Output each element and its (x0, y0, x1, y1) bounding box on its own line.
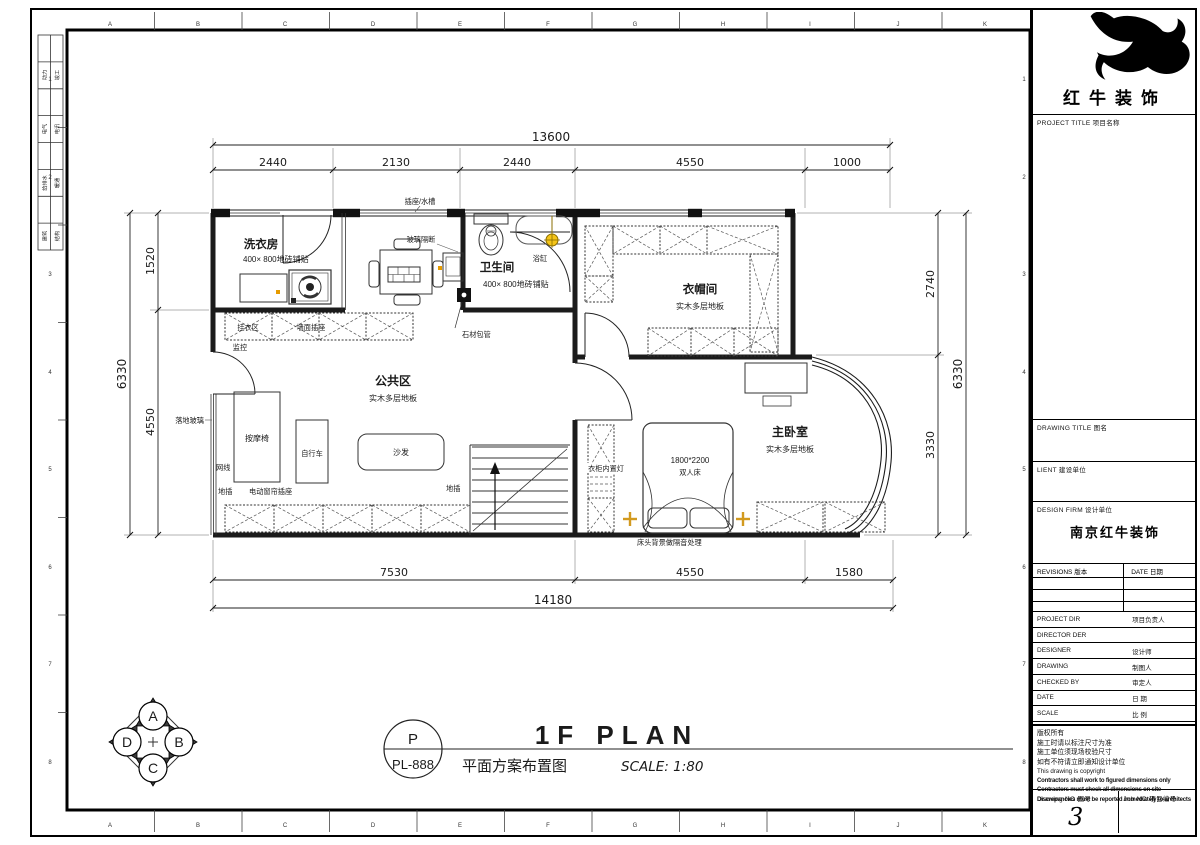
ruler-letter: E (458, 823, 462, 829)
label-bedroom-floor: 实木多层地板 (766, 444, 814, 454)
dim-bottom-seg: 4550 (676, 566, 704, 579)
ruler-letter: F (546, 823, 550, 829)
revisions-divider (1123, 564, 1124, 611)
label-floor-socket-left: 地插 (218, 487, 232, 496)
dim-top-seg: 2130 (382, 156, 410, 169)
label-bed-type: 双人床 (679, 468, 701, 477)
plan-title-scale: SCALE: 1:80 (621, 759, 703, 775)
bedside-lamp-icon (623, 512, 637, 526)
discipline-label: 动力 (41, 70, 49, 80)
sink-counter (388, 267, 420, 282)
drawing-no-value: 3 (1033, 803, 1118, 831)
row-label-en: DESIGNER (1033, 647, 1132, 654)
plan-code-top: P (408, 731, 418, 748)
ruler-letter: B (196, 823, 200, 829)
closet-door (585, 313, 629, 357)
ruler-letter: C (283, 22, 288, 28)
client-section: LIENT 建设单位 (1033, 462, 1197, 502)
plan-code-bottom: PL-888 (392, 757, 434, 772)
company-name: 红牛装饰 (1033, 84, 1197, 109)
row-label-en: SCALE (1033, 710, 1132, 717)
note-line: 版权所有 (1037, 729, 1197, 739)
label-glass-partition: 玻璃隔断 (407, 235, 436, 244)
dim-left-seg: 1520 (144, 247, 157, 275)
bedroom-door (575, 363, 632, 420)
row-label-cn: 制图人 (1132, 662, 1152, 672)
plan-title-main: 1F PLAN (535, 720, 699, 750)
revision-empty-row (1033, 578, 1197, 590)
ruler-letter: H (721, 823, 725, 829)
ruler-letter: F (546, 22, 550, 28)
vanity (443, 253, 463, 281)
drawing-title-section: DRAWING TITLE 图名 (1033, 420, 1197, 462)
dim-top-seg: 2440 (503, 156, 531, 169)
job-no-label: Job NO 项目编号 (1119, 791, 1197, 803)
bed (643, 423, 733, 533)
discipline-label: 电气 (41, 124, 49, 134)
label-floor-glass: 落地玻璃 (175, 416, 204, 425)
ruler-letters-top: A B C D E F G H I J K (108, 22, 987, 28)
number-row: Drawing NO 图号 3 Job NO 项目编号 (1033, 791, 1197, 833)
row-director: DIRECTOR DER (1033, 628, 1197, 644)
job-no-cell: Job NO 项目编号 (1119, 791, 1197, 833)
label-bathroom: 卫生间 (480, 260, 515, 274)
dim-right-seg: 3330 (924, 431, 937, 459)
ruler-number: 2 (1022, 175, 1026, 181)
drawing-no-label: Drawing NO 图号 (1033, 791, 1118, 803)
ruler-letter: I (809, 823, 811, 829)
ruler-letter: B (196, 22, 200, 28)
ruler-number: 3 (1022, 272, 1026, 278)
row-designer: DESIGNER设计师 (1033, 643, 1197, 659)
design-firm-label: DESIGN FIRM 设计单位 (1033, 502, 1197, 514)
compass-letter-b: B (174, 734, 183, 750)
project-title-section: PROJECT TITLE 项目名称 (1033, 115, 1197, 420)
top-wall (211, 209, 795, 217)
compass: A B C D (109, 698, 197, 786)
ruler-number: 4 (1022, 370, 1026, 376)
label-hanging-area: 挂衣区 (237, 323, 259, 332)
dim-left-total: 6330 (115, 359, 129, 390)
label-bedroom: 主卧室 (772, 424, 808, 439)
dim-top-seg: 1000 (833, 156, 861, 169)
client-label: LIENT 建设单位 (1033, 462, 1197, 474)
terrace-door (213, 352, 255, 394)
ruler-letter: D (371, 823, 376, 829)
row-checked-by: CHECKED BY审定人 (1033, 675, 1197, 691)
label-sofa: 沙发 (393, 447, 409, 457)
revisions-label: REVISIONS 版本 (1033, 566, 1127, 576)
ruler-letters-bottom: A B C D E F G H I J K (108, 823, 987, 829)
plan-title-cn: 平面方案布置图 (462, 757, 567, 775)
compass-letter-d: D (122, 734, 132, 750)
dimension-ticks (127, 142, 969, 611)
compass-letter-c: C (148, 760, 158, 776)
stairs (470, 445, 570, 535)
discipline-label: 建筑 (41, 230, 49, 241)
signature-table (38, 35, 63, 250)
discipline-label: 电讯 (53, 123, 61, 134)
ruler-letter: K (983, 22, 987, 28)
toilet (474, 214, 508, 255)
label-network: 网线 (216, 463, 230, 472)
row-label-en: PROJECT DIR (1033, 616, 1132, 623)
bay-window (812, 357, 891, 537)
discipline-label: 结构 (53, 231, 61, 241)
ruler-number: 5 (1022, 467, 1026, 473)
logo-hook (1096, 54, 1108, 79)
ruler-number: 4 (48, 370, 52, 376)
dim-bottom-seg: 1580 (835, 566, 863, 579)
label-massage-chair: 按摩椅 (245, 433, 269, 443)
label-closet-floor: 实木多层地板 (676, 301, 724, 311)
ruler-letter: A (108, 823, 112, 829)
row-scale: SCALE比 例 (1033, 706, 1197, 722)
ruler-letter: I (809, 22, 811, 28)
date-col-label: DATE 日期 (1127, 566, 1163, 576)
row-label-cn: 设计师 (1132, 646, 1152, 656)
row-label-en: DIRECTOR DER (1033, 632, 1132, 639)
ruler-number: 6 (48, 565, 52, 571)
cabinet-hatches (225, 226, 885, 532)
dining-table (369, 239, 443, 305)
stair-direction-arrow (490, 462, 500, 530)
ruler-letter: H (721, 22, 725, 28)
label-bathtub: 浴缸 (533, 254, 547, 263)
discipline-label: 竣工 (53, 70, 61, 80)
compass-center-icon (148, 737, 158, 747)
row-label-cn: 项目负责人 (1132, 614, 1165, 624)
furniture (234, 214, 807, 533)
dresser (745, 363, 807, 406)
design-firm-section: DESIGN FIRM 设计单位 南京红牛装饰 (1033, 502, 1197, 564)
label-socket-sink: 插座/水槽 (405, 197, 436, 206)
dim-right-total: 6330 (951, 359, 965, 390)
label-wall-socket: 墙面插座 (297, 323, 326, 332)
ruler-letter: J (897, 22, 900, 28)
label-bed-size: 1800*2200 (671, 456, 710, 465)
row-label-cn: 日 期 (1132, 693, 1147, 703)
row-date: DATE日 期 (1033, 691, 1197, 707)
ruler-number: 7 (1022, 662, 1026, 668)
logo-swoosh (1091, 12, 1190, 74)
socket-dot-icon (276, 290, 280, 294)
row-label-en: CHECKED BY (1033, 679, 1132, 686)
note-line: 施工时请以标注尺寸为准 (1037, 739, 1197, 749)
label-headboard-note: 床头背景做隔音处理 (637, 538, 702, 547)
ruler-number: 8 (1022, 760, 1026, 766)
ruler-letter: A (108, 22, 112, 28)
label-bicycle: 自行车 (301, 449, 323, 458)
ruler-number: 5 (48, 467, 52, 473)
row-drawing: DRAWING制图人 (1033, 659, 1197, 675)
label-curtain-socket: 电动窗帘插座 (249, 487, 292, 496)
ruler-number: 3 (48, 272, 52, 278)
ruler-number: 1 (1022, 77, 1026, 83)
company-logo (1035, 12, 1195, 84)
note-line: 施工单位须现场校验尺寸 (1037, 748, 1197, 758)
dim-top-seg: 4550 (676, 156, 704, 169)
drawing-title-label: DRAWING TITLE 图名 (1033, 420, 1197, 432)
note-line-en-bold: Contractors shall work to figured dimens… (1037, 777, 1197, 787)
row-label-cn: 比 例 (1132, 709, 1147, 719)
floor-plan-canvas: A B C D E F G H I J K A B C D E F G H I … (0, 0, 1200, 845)
note-line-en: This drawing is copyright (1037, 767, 1197, 777)
label-wardrobe-light: 衣柜内置灯 (588, 464, 624, 473)
row-project-dir: PROJECT DIR项目负责人 (1033, 612, 1197, 628)
logo-section: 红牛装饰 (1033, 8, 1197, 115)
ruler-number: 8 (48, 760, 52, 766)
dim-left-seg: 4550 (144, 408, 157, 436)
label-monitor: 监控 (233, 343, 247, 352)
dim-bottom-seg: 7530 (380, 566, 408, 579)
discipline-label: 给排水 (41, 174, 49, 190)
revisions-table: REVISIONS 版本 DATE 日期 (1033, 564, 1197, 612)
socket-dot-icon (438, 266, 442, 270)
label-laundry-floor: 400× 800地砖铺贴 (243, 254, 309, 264)
revision-empty-row (1033, 590, 1197, 602)
ruler-letter: J (897, 823, 900, 829)
label-laundry: 洗衣房 (244, 237, 279, 251)
dim-top-total: 13600 (532, 130, 570, 144)
copyright-notes: 版权所有 施工时请以标注尺寸为准 施工单位须现场校验尺寸 如有不符请立即通知设计… (1033, 724, 1197, 790)
ruler-letter: K (983, 823, 987, 829)
ruler-letter: G (633, 22, 638, 28)
row-label-en: DRAWING (1033, 663, 1132, 670)
ruler-number: 6 (1022, 565, 1026, 571)
laundry-counter (240, 274, 287, 302)
design-firm-value: 南京红牛装饰 (1033, 522, 1197, 541)
bedside-lamp-icon (736, 512, 750, 526)
row-label-cn: 审定人 (1132, 677, 1152, 687)
project-title-label: PROJECT TITLE 项目名称 (1033, 115, 1197, 127)
label-bathroom-floor: 400× 800地砖铺贴 (483, 279, 549, 289)
ruler-letter: D (371, 22, 376, 28)
washing-machine (289, 270, 331, 304)
note-line: 如有不符请立即通知设计单位 (1037, 758, 1197, 768)
discipline-label: 暖通 (53, 177, 61, 188)
drawing-titlebar: P PL-888 1F PLAN 平面方案布置图 SCALE: 1:80 (384, 720, 1013, 778)
drawing-no-cell: Drawing NO 图号 3 (1033, 791, 1119, 833)
compass-letter-a: A (148, 708, 158, 724)
dim-bottom-total: 14180 (534, 593, 572, 607)
label-public-floor: 实木多层地板 (369, 393, 417, 403)
label-public-area: 公共区 (375, 373, 411, 388)
title-block: 红牛装饰 PROJECT TITLE 项目名称 DRAWING TITLE 图名… (1030, 8, 1197, 835)
ruler-number: 7 (48, 662, 52, 668)
dim-top-seg: 2440 (259, 156, 287, 169)
label-closet: 衣帽间 (683, 282, 718, 296)
ruler-letter: C (283, 823, 288, 829)
ruler-letter: E (458, 22, 462, 28)
dim-right-seg: 2740 (924, 270, 937, 298)
ruler-letter: G (633, 823, 638, 829)
staff-rows: PROJECT DIR项目负责人 DIRECTOR DER DESIGNER设计… (1033, 612, 1197, 722)
label-floor-socket-right: 地插 (446, 484, 460, 493)
ruler-numbers-right: 1 2 3 4 5 6 7 8 (1022, 77, 1026, 766)
row-label-en: DATE (1033, 694, 1132, 701)
label-stone-pipe: 石材包管 (462, 330, 491, 339)
